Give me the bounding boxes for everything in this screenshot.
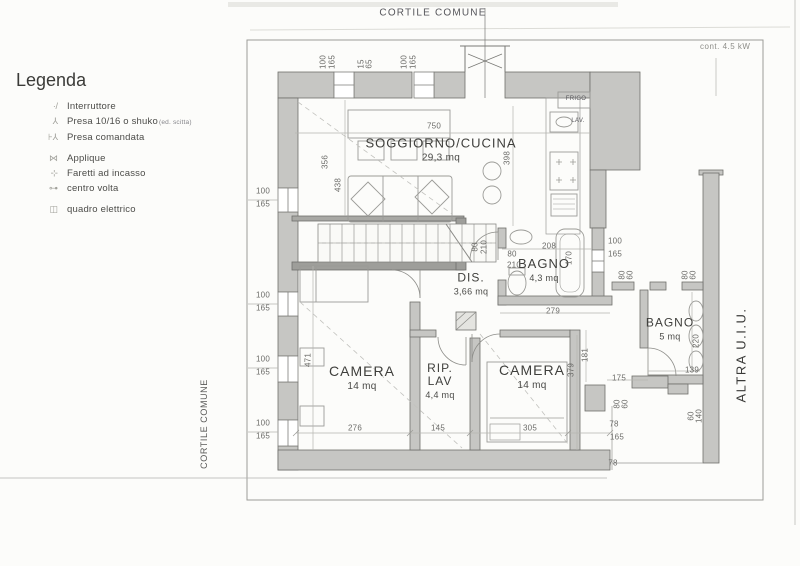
legend-item-label: Presa 10/16 o shuko(ed. scitta) [67,116,192,128]
dimension-label: 80 [507,250,516,259]
switch-icon: ∙/ [14,101,67,112]
dimension-label: 170 [565,251,574,265]
dimension-label: 60 [689,270,698,279]
neighbor-unit-label: ALTRA U.I.U. [734,307,749,402]
room-area: 5 mq [646,332,694,342]
socket-icon: ⅄ [14,116,67,127]
dimension-label: 100 [256,355,270,364]
dimension-label: 60 [621,399,630,408]
dimension-label: 165 [610,433,624,442]
electrical-panel-icon: ◫ [14,204,67,215]
dimension-label: 210 [507,261,521,270]
room-name: DIS. [454,271,489,284]
dimension-label: 750 [427,122,441,131]
room-name: CAMERA [499,363,565,378]
legend-item: ∙/Interruttore [14,101,249,112]
dimension-label: 165 [328,55,337,69]
room-area: 14 mq [499,380,565,391]
dimension-label: 100 [256,419,270,428]
dimension-label: 60 [626,270,635,279]
ceiling-center-light-icon: ⊶ [14,183,67,194]
chimney-vent [460,8,510,98]
recessed-spotlight-icon: ⊹ [14,168,67,179]
legend-item-label: Presa comandata [67,132,144,143]
dimension-label: 210 [480,240,489,254]
dimension-label: 398 [503,151,512,165]
dimension-label: 165 [256,432,270,441]
dimension-label: 145 [431,424,445,433]
dimension-label: 100 [256,187,270,196]
dimension-label: 100 [400,55,409,69]
room-label: BAGNO4,3 mq [518,257,570,283]
legend: Legenda ∙/Interruttore⅄Presa 10/16 o shu… [14,70,249,219]
legend-item-label: Interruttore [67,101,116,112]
switched-socket-icon: ⊦⅄ [14,132,67,143]
dimension-label: 165 [409,55,418,69]
legend-item: ⊹Faretti ad incasso [14,168,249,179]
room-area: 29,3 mq [365,153,516,164]
room-name: BAGNO [518,257,570,271]
dimension-label: 175 [612,374,626,383]
dimension-label: 305 [523,424,537,433]
dimension-label: 100 [319,55,328,69]
room-name: SOGGIORNO/CUCINA [365,136,516,150]
legend-item-suffix: (ed. scitta) [159,119,192,126]
dimension-label: 379 [567,363,576,377]
dimension-label: 165 [256,368,270,377]
legend-item-label: quadro elettrico [67,204,136,215]
dimension-label: 78 [609,420,618,429]
room-name: CAMERA [329,364,395,379]
dimension-label: 165 [608,250,622,259]
dimension-label: 438 [334,178,343,192]
legend-item: ◫quadro elettrico [14,204,249,215]
dimension-label: 100 [608,237,622,246]
dimension-label: 279 [546,307,560,316]
scanned-floorplan-page: Legenda ∙/Interruttore⅄Presa 10/16 o shu… [0,0,800,566]
legend-item-label: Applique [67,153,106,164]
sconce-icon: ⋈ [14,153,67,164]
room-name: BAGNO [646,316,694,329]
dimension-label: 208 [542,242,556,251]
dimension-label: 80 [471,242,480,251]
room-label: SOGGIORNO/CUCINA29,3 mq [365,136,516,163]
room-area: 3,66 mq [454,287,489,297]
dimension-label: 100 [256,291,270,300]
legend-item: ⅄Presa 10/16 o shuko(ed. scitta) [14,116,249,128]
legend-item: ⊦⅄Presa comandata [14,132,249,143]
room-label: CAMERA14 mq [499,363,565,391]
dimension-label: 165 [256,304,270,313]
staircase [318,224,496,262]
dimension-label: 356 [321,155,330,169]
dimension-label: 220 [692,334,701,348]
room-area: 4,3 mq [518,273,570,283]
fixture-label: LAV. [571,118,584,124]
legend-item: ⊶centro volta [14,183,249,194]
dimension-label: 78 [608,459,617,468]
dimension-label: 140 [695,409,704,423]
power-contract-note: cont. 4.5 kW [700,42,750,51]
room-label: BAGNO5 mq [646,316,694,341]
room-label: CAMERA14 mq [329,364,395,392]
room-label: RIP. LAV4,4 mq [425,362,454,400]
dimension-label: 165 [256,200,270,209]
legend-item: ⋈Applique [14,153,249,164]
dimension-label: 181 [581,348,590,362]
legend-item-label: centro volta [67,183,119,194]
dimension-label: 276 [348,424,362,433]
room-name: RIP. LAV [425,362,454,388]
dimension-label: 65 [365,59,374,68]
room-label: DIS.3,66 mq [454,271,489,296]
courtyard-label-top: CORTILE COMUNE [379,8,486,19]
legend-item-label: Faretti ad incasso [67,168,146,179]
room-area: 4,4 mq [425,390,454,400]
courtyard-label-left: CORTILE COMUNE [199,379,209,469]
dimension-label: 471 [304,353,313,367]
legend-title: Legenda [16,70,249,91]
room-area: 14 mq [329,381,395,392]
dimension-label: 139 [685,366,699,375]
fixture-label: FRIGO [566,96,587,102]
legend-items: ∙/Interruttore⅄Presa 10/16 o shuko(ed. s… [14,101,249,215]
